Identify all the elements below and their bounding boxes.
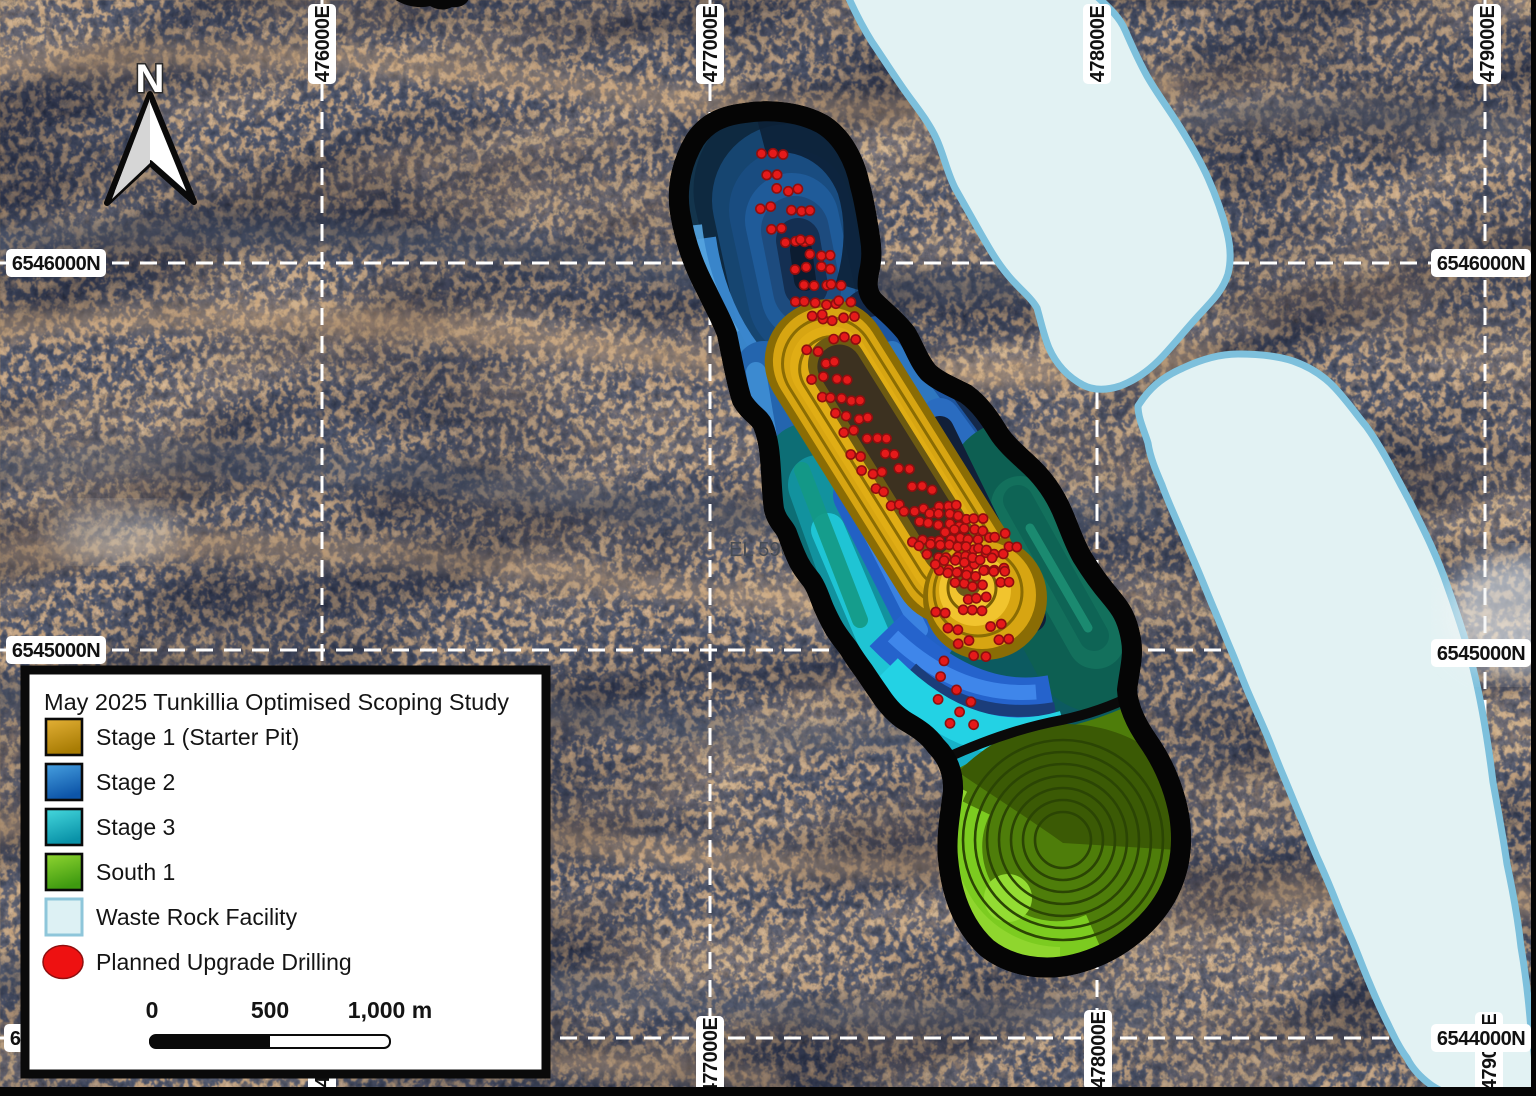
svg-text:Stage 3: Stage 3 [96, 814, 175, 840]
svg-text:6546000N: 6546000N [12, 253, 100, 275]
svg-text:Planned Upgrade Drilling: Planned Upgrade Drilling [96, 949, 352, 975]
svg-text:Waste Rock Facility: Waste Rock Facility [96, 904, 298, 930]
svg-text:1,000 m: 1,000 m [348, 997, 432, 1023]
svg-text:479000E: 479000E [1477, 6, 1499, 83]
svg-text:6544000N: 6544000N [1437, 1028, 1525, 1050]
svg-text:478000E: 478000E [1087, 6, 1109, 83]
svg-text:Stage 1 (Starter Pit): Stage 1 (Starter Pit) [96, 724, 299, 750]
svg-text:6545000N: 6545000N [12, 640, 100, 662]
svg-text:500: 500 [251, 997, 289, 1023]
svg-text:478000E: 478000E [1088, 1012, 1110, 1089]
svg-text:476000E: 476000E [312, 6, 334, 83]
svg-text:Stage 2: Stage 2 [96, 769, 175, 795]
svg-text:6546000N: 6546000N [1437, 253, 1525, 275]
svg-text:South 1: South 1 [96, 859, 175, 885]
svg-text:477000E: 477000E [700, 6, 722, 83]
svg-text:6545000N: 6545000N [1437, 643, 1525, 665]
svg-text:477000E: 477000E [700, 1018, 722, 1095]
svg-text:0: 0 [146, 997, 159, 1023]
svg-text:May 2025 Tunkillia Optimised S: May 2025 Tunkillia Optimised Scoping Stu… [44, 689, 509, 715]
